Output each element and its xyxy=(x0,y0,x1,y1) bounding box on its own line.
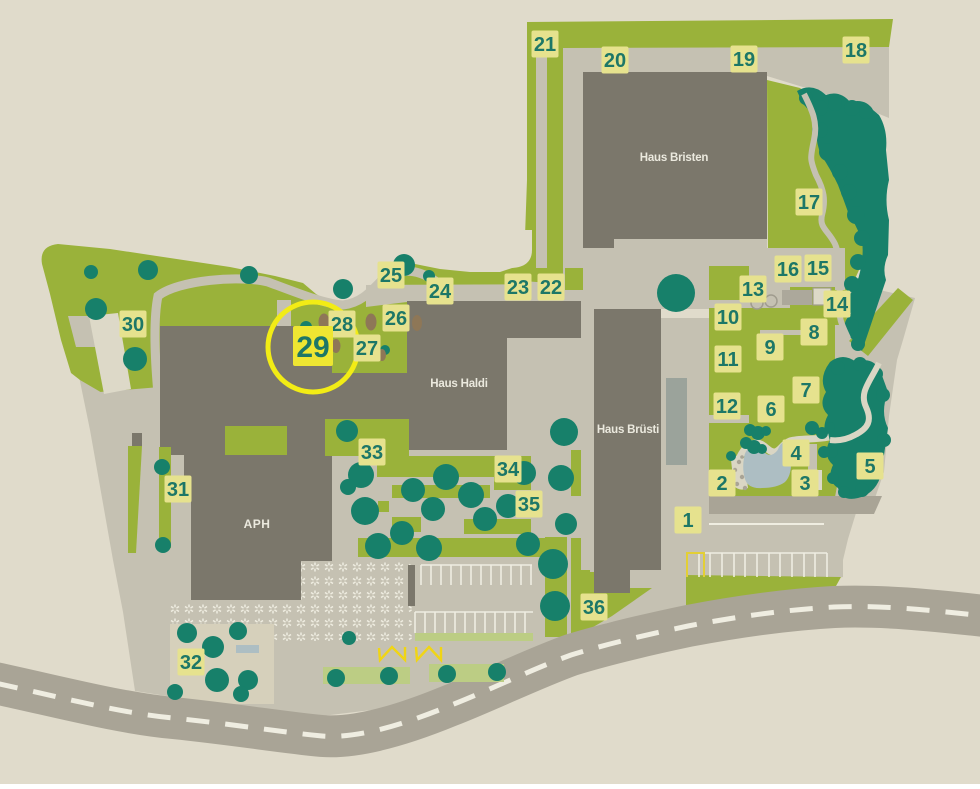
svg-text:27: 27 xyxy=(356,338,378,360)
svg-text:26: 26 xyxy=(385,308,407,330)
svg-text:24: 24 xyxy=(429,281,452,303)
svg-text:15: 15 xyxy=(807,258,829,280)
svg-text:2: 2 xyxy=(716,473,727,495)
svg-text:Haus Brüsti: Haus Brüsti xyxy=(597,424,659,436)
svg-text:28: 28 xyxy=(331,314,353,336)
svg-text:APH: APH xyxy=(244,517,271,531)
svg-text:16: 16 xyxy=(777,259,799,281)
svg-text:13: 13 xyxy=(742,279,764,301)
svg-text:3: 3 xyxy=(799,473,810,495)
svg-text:36: 36 xyxy=(583,597,605,619)
svg-text:25: 25 xyxy=(380,265,402,287)
svg-text:10: 10 xyxy=(717,307,739,329)
svg-text:21: 21 xyxy=(534,34,556,56)
svg-text:11: 11 xyxy=(717,349,738,371)
svg-text:31: 31 xyxy=(167,479,189,501)
svg-text:33: 33 xyxy=(361,442,383,464)
svg-text:19: 19 xyxy=(733,49,755,71)
svg-text:1: 1 xyxy=(682,510,693,532)
svg-text:32: 32 xyxy=(180,652,202,674)
svg-text:34: 34 xyxy=(497,459,520,481)
svg-text:5: 5 xyxy=(864,456,875,478)
svg-text:Haus Bristen: Haus Bristen xyxy=(640,152,709,164)
svg-text:35: 35 xyxy=(518,494,540,516)
svg-text:8: 8 xyxy=(808,322,819,344)
svg-text:22: 22 xyxy=(540,277,562,299)
svg-text:30: 30 xyxy=(122,314,144,336)
svg-text:7: 7 xyxy=(800,380,811,402)
svg-text:14: 14 xyxy=(826,294,849,316)
svg-text:29: 29 xyxy=(296,331,329,364)
svg-text:6: 6 xyxy=(765,399,776,421)
svg-text:Haus Haldi: Haus Haldi xyxy=(430,378,487,390)
svg-text:18: 18 xyxy=(845,40,867,62)
svg-text:12: 12 xyxy=(716,396,738,418)
svg-text:4: 4 xyxy=(790,443,802,465)
svg-text:23: 23 xyxy=(507,277,529,299)
svg-text:20: 20 xyxy=(604,50,626,72)
svg-text:17: 17 xyxy=(798,192,820,214)
svg-text:9: 9 xyxy=(764,337,775,359)
